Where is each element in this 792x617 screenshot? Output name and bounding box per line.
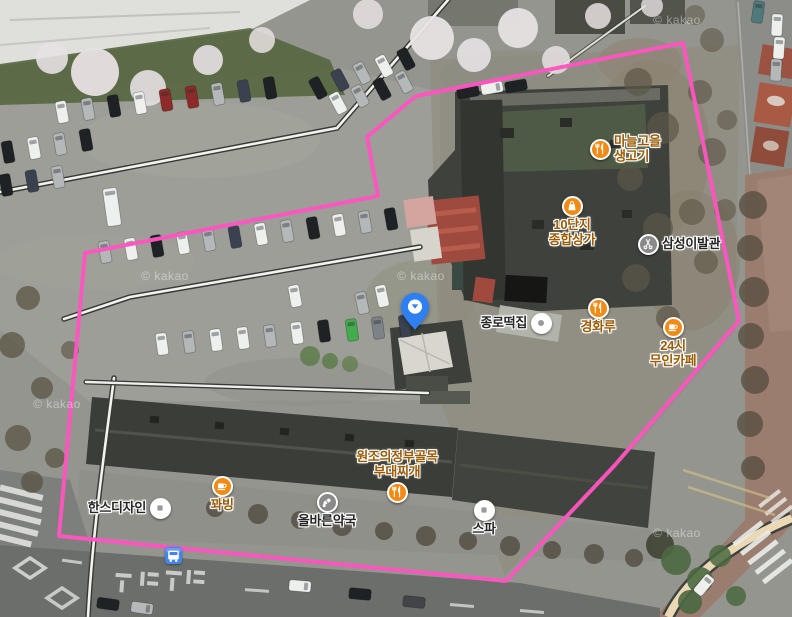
poi-label: 한스디자인 xyxy=(88,501,146,516)
square-icon xyxy=(474,500,495,521)
dot-icon xyxy=(531,313,552,334)
bus-stop-icon[interactable] xyxy=(165,547,182,564)
satellite-imagery xyxy=(0,0,792,617)
restaurant-icon xyxy=(590,139,611,160)
poi-label: 24시 무인카페 xyxy=(650,339,697,368)
barber-icon xyxy=(638,234,659,255)
poi-label: 스파 xyxy=(472,522,495,537)
pharmacy-icon xyxy=(317,492,338,513)
poi-label: 경화루 xyxy=(581,320,616,335)
restaurant-icon xyxy=(387,482,408,503)
restaurant-icon xyxy=(588,298,609,319)
poi-label: 꽈빙 xyxy=(210,498,233,513)
poi-label: 올바른약국 xyxy=(298,514,356,529)
shop-icon xyxy=(562,196,583,217)
poi-label: 삼성이발관 xyxy=(662,237,720,252)
satellite-map-canvas[interactable]: © kakao© kakao© kakao© kakao© kakao 마늘고을… xyxy=(0,0,792,617)
poi-label: 10단지 종합상가 xyxy=(549,218,596,247)
location-pin[interactable] xyxy=(400,291,430,331)
cafe-icon xyxy=(212,476,233,497)
square-icon xyxy=(150,498,171,519)
poi-label: 원조의정부골목 부대찌개 xyxy=(356,450,438,479)
cafe-icon xyxy=(663,317,684,338)
poi-label: 종로떡집 xyxy=(480,316,527,331)
poi-label: 마늘고을 생고기 xyxy=(614,135,661,164)
